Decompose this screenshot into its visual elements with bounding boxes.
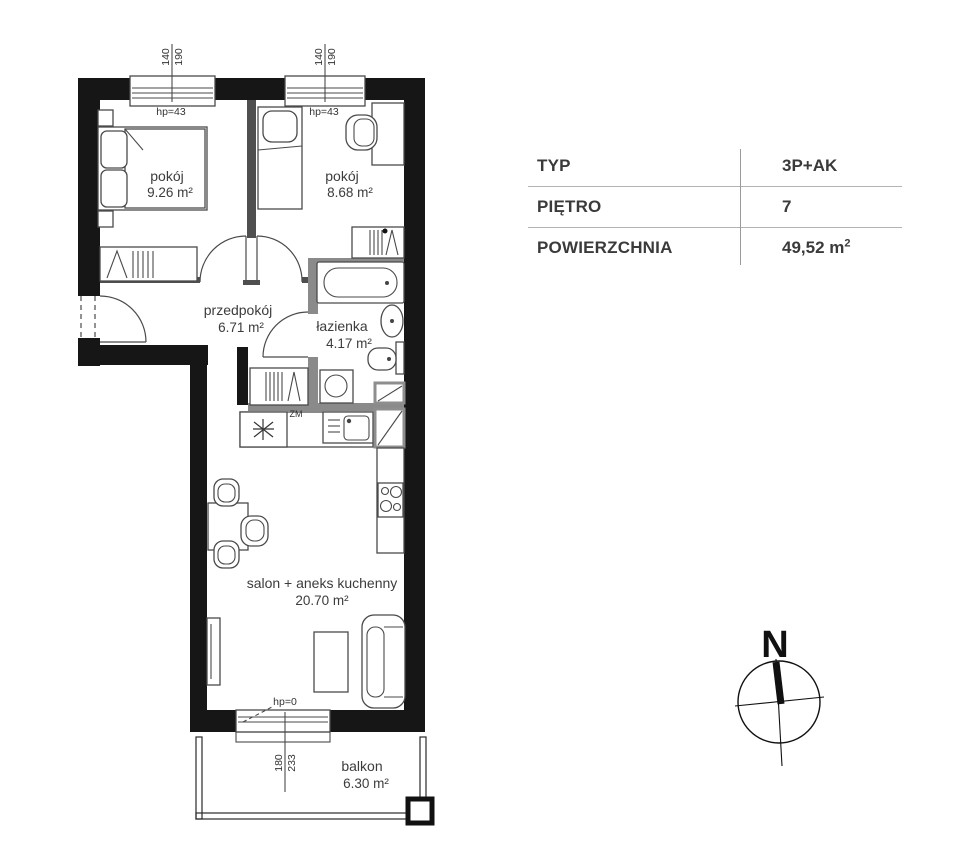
hall-closet — [250, 368, 308, 405]
info-table: TYP 3P+AK PIĘTRO 7 POWIERZCHNIA 49,52 m2 — [528, 146, 902, 268]
room2-area: 8.68 m² — [327, 185, 373, 200]
info-label-pietro: PIĘTRO — [528, 197, 740, 217]
balcony-door-height: 233 — [286, 754, 298, 772]
kitchen-unit-label: ZM — [290, 409, 303, 419]
bathtub — [317, 262, 404, 303]
window2-width: 140 — [313, 48, 325, 66]
hall-label: przedpokój — [204, 302, 273, 318]
balcony-railing — [196, 737, 432, 823]
washing-machine — [320, 370, 353, 403]
balcony-area: 6.30 m² — [343, 776, 389, 791]
window1-hp: hp=43 — [156, 106, 186, 118]
door-arc-room1 — [200, 236, 246, 282]
window1-width: 140 — [160, 48, 172, 66]
bath-area: 4.17 m² — [326, 336, 372, 351]
dining-chair-bottom — [214, 541, 239, 568]
nightstand-top — [98, 110, 113, 126]
wardrobe-room1 — [100, 247, 197, 281]
north-compass: N — [735, 624, 824, 766]
tv-cabinet — [207, 618, 220, 685]
info-value-pietro-text: 7 — [782, 197, 791, 216]
room1-area: 9.26 m² — [147, 185, 193, 200]
dining-chair-top — [214, 479, 239, 506]
door-arc-bathroom — [263, 312, 308, 357]
dining-chair-right — [241, 516, 268, 546]
info-row-powierzchnia: POWIERZCHNIA 49,52 m2 — [528, 227, 902, 268]
balcony-door-hp: hp=0 — [273, 696, 297, 708]
toilet — [368, 342, 404, 374]
salon-label: salon + aneks kuchenny — [247, 575, 398, 591]
window2-height: 190 — [326, 48, 338, 66]
info-value-powierzchnia: 49,52 m2 — [740, 238, 851, 258]
bath-label: łazienka — [316, 318, 368, 334]
info-value-powierzchnia-text: 49,52 m — [782, 238, 844, 257]
info-value-typ: 3P+AK — [740, 156, 837, 176]
balcony-post — [408, 799, 432, 823]
door-arc-room2 — [257, 236, 302, 282]
floor-plan-page: pokój 9.26 m² pokój 8.68 m² przedpokój 6… — [0, 0, 968, 862]
compass-needle — [776, 662, 781, 704]
balcony-door-width: 180 — [273, 754, 285, 772]
nightstand-bottom — [98, 211, 113, 227]
hall-area: 6.71 m² — [218, 320, 264, 335]
salon-area: 20.70 m² — [295, 593, 349, 608]
window1-height: 190 — [173, 48, 185, 66]
balcony-label: balkon — [341, 758, 382, 774]
fridge — [240, 412, 287, 447]
desk-chair — [346, 115, 377, 150]
wardrobe-room2 — [352, 227, 404, 258]
balcony-door — [236, 710, 330, 742]
info-row-pietro: PIĘTRO 7 — [528, 186, 902, 227]
info-label-typ: TYP — [528, 156, 740, 176]
tall-cabinet-lower — [375, 409, 404, 447]
room1-label: pokój — [150, 168, 183, 184]
room2-label: pokój — [325, 168, 358, 184]
info-value-typ-text: 3P+AK — [782, 156, 837, 175]
washbasin — [381, 305, 403, 337]
bedroom-divider-wall — [247, 100, 256, 238]
sofa — [362, 615, 405, 708]
stove — [377, 448, 404, 553]
window2-hp: hp=43 — [309, 106, 339, 118]
coffee-table — [314, 632, 348, 692]
info-value-powierzchnia-sup: 2 — [844, 237, 850, 249]
north-label: N — [761, 624, 788, 666]
info-row-typ: TYP 3P+AK — [528, 146, 902, 186]
entrance-door — [81, 296, 146, 342]
tall-cabinet-upper — [375, 383, 404, 403]
bed-single — [258, 107, 302, 209]
info-label-powierzchnia: POWIERZCHNIA — [528, 238, 740, 258]
kitchen-sink — [323, 412, 373, 443]
info-value-pietro: 7 — [740, 197, 791, 217]
floor-plan: pokój 9.26 m² pokój 8.68 m² przedpokój 6… — [0, 0, 968, 862]
